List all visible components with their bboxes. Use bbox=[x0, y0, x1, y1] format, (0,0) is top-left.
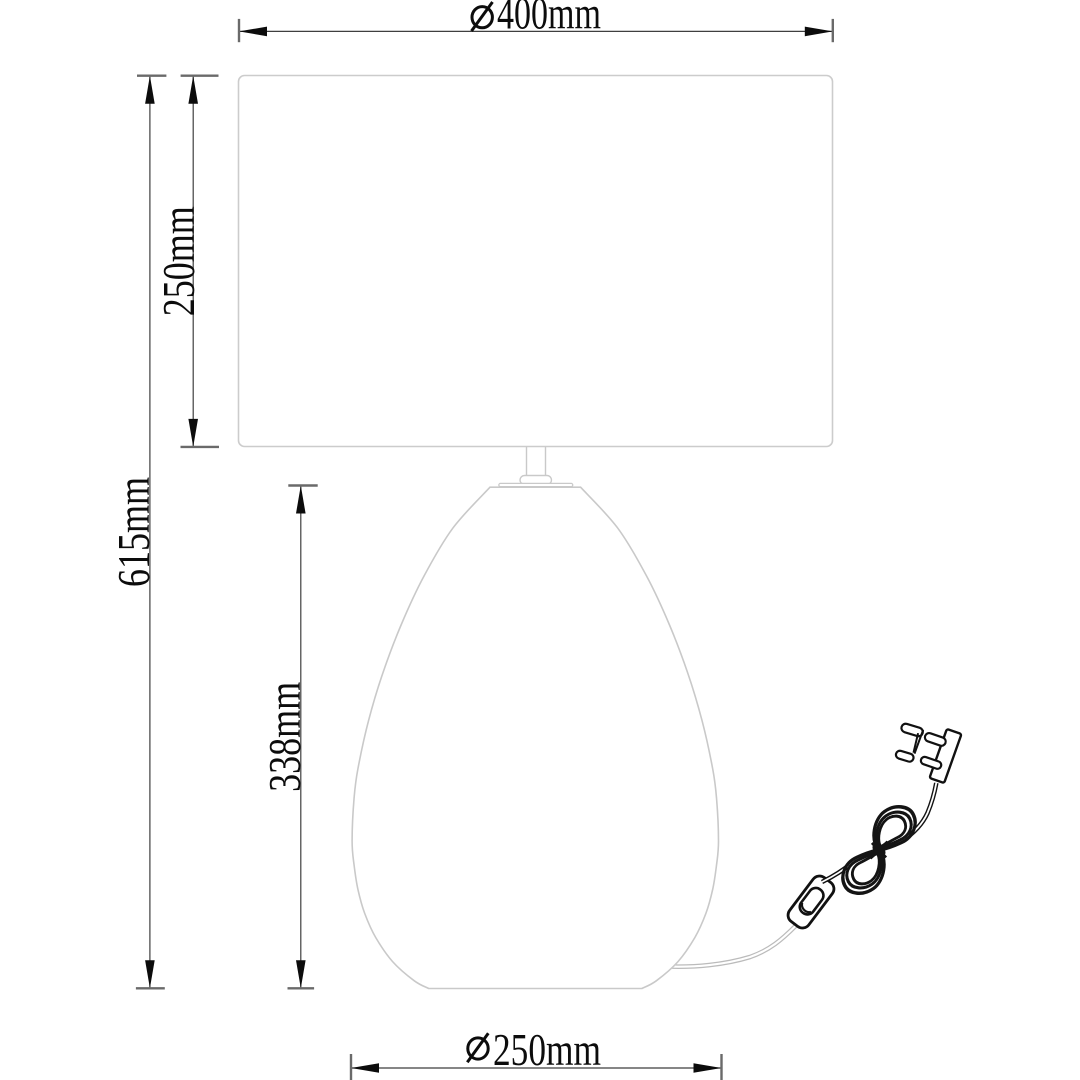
svg-text:250mm: 250mm bbox=[153, 206, 204, 316]
svg-text:250mm: 250mm bbox=[493, 1024, 601, 1075]
svg-text:338mm: 338mm bbox=[259, 682, 310, 792]
svg-text:615mm: 615mm bbox=[108, 477, 159, 587]
svg-text:400mm: 400mm bbox=[497, 0, 601, 39]
